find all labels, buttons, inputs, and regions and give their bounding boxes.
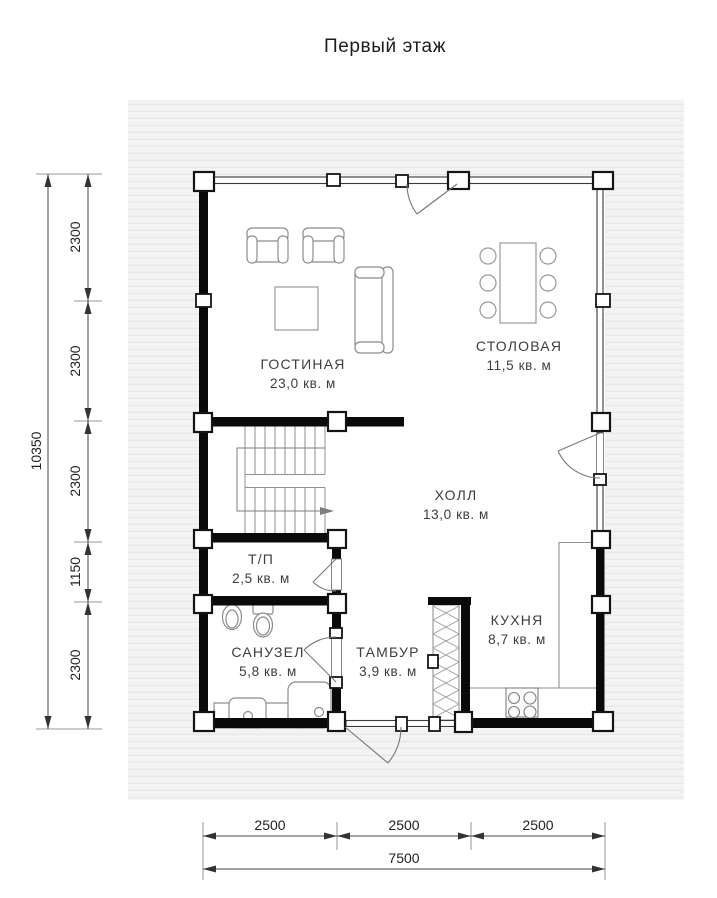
sofa bbox=[355, 267, 393, 353]
stair-wall bbox=[199, 417, 404, 427]
room-area-dining: 11,5 кв. м bbox=[487, 358, 552, 373]
chair bbox=[480, 248, 496, 264]
chair bbox=[540, 275, 556, 291]
room-area-hall: 13,0 кв. м bbox=[423, 507, 489, 522]
kitchen-left-wall bbox=[461, 597, 470, 728]
floor-plan-page: Первый этаж bbox=[0, 0, 717, 898]
dim-bottom-seg-1: 2500 bbox=[254, 817, 285, 833]
room-label-hall: ХОЛЛ bbox=[435, 487, 478, 503]
room-label-tp: Т/П bbox=[248, 551, 274, 567]
bathroom-top-wall bbox=[199, 596, 346, 606]
dim-bottom-seg-3: 2500 bbox=[522, 817, 553, 833]
chair bbox=[540, 302, 556, 318]
room-label-dining: СТОЛОВАЯ bbox=[476, 338, 562, 354]
dim-bottom-seg-2: 2500 bbox=[388, 817, 419, 833]
room-label-kitchen: КУХНЯ bbox=[491, 612, 544, 628]
room-area-living: 23,0 кв. м bbox=[270, 376, 336, 391]
dim-bottom-total: 7500 bbox=[388, 850, 419, 866]
dim-left-seg-4: 1150 bbox=[67, 557, 83, 587]
armchair-1 bbox=[247, 228, 288, 263]
left-wall bbox=[199, 177, 208, 728]
strip-cap-wall bbox=[428, 597, 471, 605]
tp-top-wall bbox=[199, 533, 346, 543]
page-title: Первый этаж bbox=[324, 36, 446, 58]
room-area-tp: 2,5 кв. м bbox=[232, 571, 290, 586]
chair bbox=[540, 248, 556, 264]
room-label-bathroom: САНУЗЕЛ bbox=[231, 644, 304, 660]
dim-left-total: 10350 bbox=[28, 431, 44, 470]
toilet bbox=[253, 604, 273, 637]
dim-left-seg-2: 2300 bbox=[67, 345, 83, 376]
dim-left-seg-3: 2300 bbox=[67, 465, 83, 496]
room-area-kitchen: 8,7 кв. м bbox=[488, 632, 546, 647]
chair bbox=[480, 275, 496, 291]
room-area-bathroom: 5,8 кв. м bbox=[239, 664, 297, 679]
bottom-wall-right bbox=[460, 718, 606, 728]
dining-table bbox=[500, 243, 536, 323]
stove bbox=[506, 688, 538, 718]
room-label-vestibule: ТАМБУР bbox=[356, 644, 419, 660]
chair bbox=[480, 302, 496, 318]
right-wall-lower bbox=[596, 540, 605, 728]
room-area-vestibule: 3,9 кв. м bbox=[359, 664, 417, 679]
armchair-2 bbox=[303, 228, 344, 263]
dim-left-seg-1: 2300 bbox=[67, 221, 83, 252]
dining-set bbox=[480, 243, 556, 323]
coffee-table bbox=[275, 287, 318, 330]
dim-left-seg-5: 2300 bbox=[67, 649, 83, 680]
floor-plan-canvas: ГОСТИНАЯ 23,0 кв. м СТОЛОВАЯ 11,5 кв. м … bbox=[0, 0, 717, 898]
sink bbox=[223, 605, 242, 630]
room-label-living: ГОСТИНАЯ bbox=[260, 356, 345, 372]
bottom-wall-left bbox=[199, 718, 346, 728]
